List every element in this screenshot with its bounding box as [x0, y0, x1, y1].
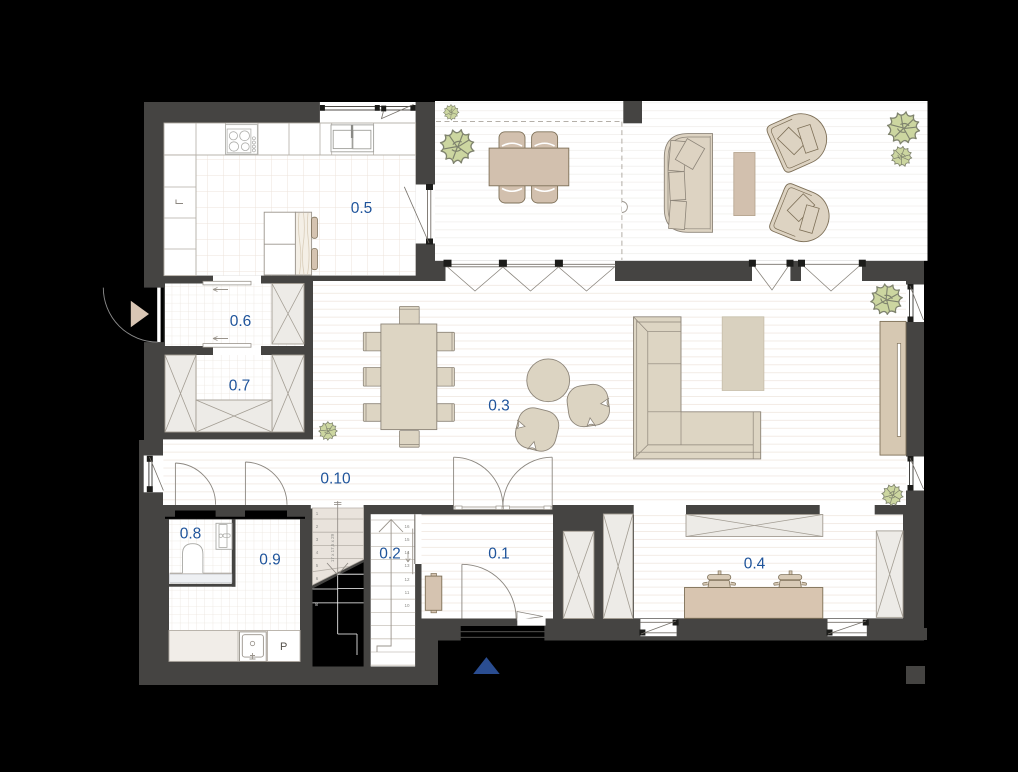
- svg-text:13: 13: [404, 563, 410, 568]
- svg-text:16: 16: [404, 524, 410, 529]
- svg-text:0.10: 0.10: [320, 471, 351, 488]
- svg-text:0.5: 0.5: [351, 200, 373, 217]
- svg-text:0.3: 0.3: [488, 398, 510, 415]
- svg-text:15: 15: [404, 537, 410, 542]
- svg-text:0.1: 0.1: [488, 546, 510, 563]
- svg-text:10: 10: [404, 603, 410, 608]
- svg-text:12: 12: [404, 577, 410, 582]
- svg-text:0.9: 0.9: [259, 552, 281, 569]
- svg-text:P: P: [280, 641, 287, 653]
- svg-text:0.2: 0.2: [379, 546, 401, 563]
- svg-text:0.8: 0.8: [180, 526, 202, 543]
- svg-text:14: 14: [404, 550, 410, 555]
- svg-text:0.6: 0.6: [230, 313, 252, 330]
- svg-text:0.4: 0.4: [744, 556, 766, 573]
- svg-text:11: 11: [405, 590, 410, 595]
- svg-text:0.7: 0.7: [229, 378, 251, 395]
- svg-text:17 x 17,5 x 29: 17 x 17,5 x 29: [330, 533, 335, 562]
